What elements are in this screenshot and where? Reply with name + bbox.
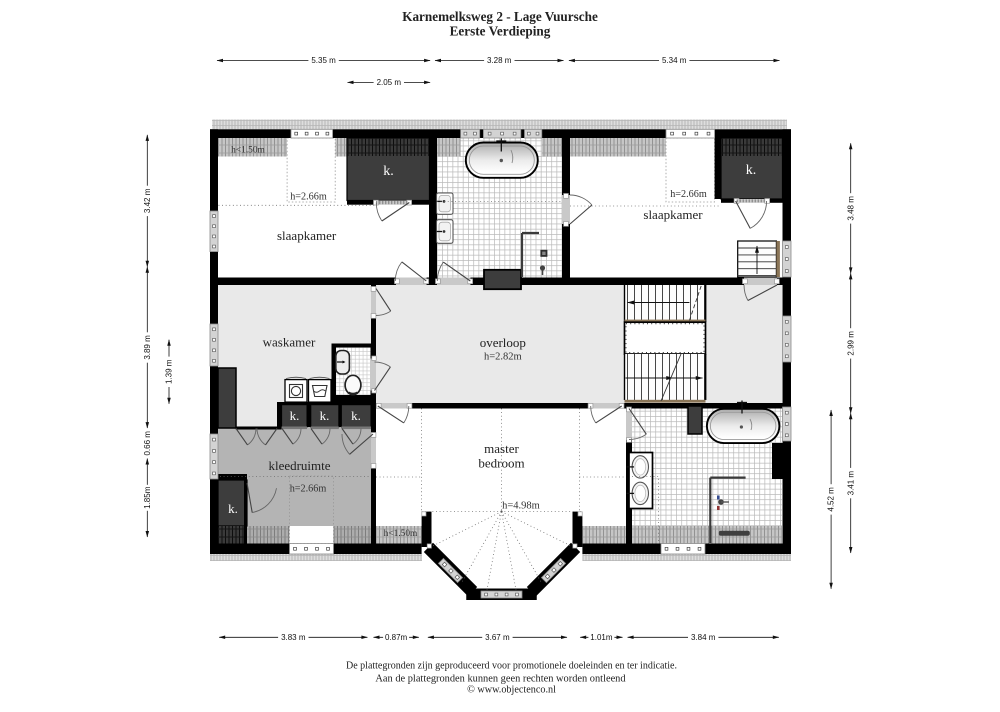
svg-text:1.01m: 1.01m: [590, 633, 613, 642]
svg-text:h=4.98m: h=4.98m: [502, 501, 540, 512]
svg-text:5.34 m: 5.34 m: [662, 56, 687, 65]
svg-text:k.: k.: [228, 501, 238, 516]
svg-text:h<1.50m: h<1.50m: [231, 146, 265, 156]
svg-text:k.: k.: [290, 408, 300, 423]
svg-text:2.05 m: 2.05 m: [377, 78, 402, 87]
svg-text:3.67 m: 3.67 m: [485, 633, 510, 642]
svg-text:0.66 m: 0.66 m: [143, 431, 152, 456]
svg-text:0.87m: 0.87m: [385, 633, 408, 642]
svg-text:3.28 m: 3.28 m: [487, 56, 512, 65]
svg-text:bedroom: bedroom: [478, 456, 524, 471]
svg-text:1.85m: 1.85m: [143, 486, 152, 509]
svg-text:k.: k.: [351, 408, 361, 423]
svg-text:h=2.66m: h=2.66m: [670, 189, 707, 200]
svg-text:4.52 m: 4.52 m: [827, 487, 836, 512]
svg-text:Karnemelksweg 2 - Lage Vuursch: Karnemelksweg 2 - Lage Vuursche: [402, 9, 598, 24]
svg-text:waskamer: waskamer: [263, 335, 316, 350]
svg-text:De plattegronden zijn geproduc: De plattegronden zijn geproduceerd voor …: [346, 661, 677, 672]
svg-text:3.84 m: 3.84 m: [691, 633, 716, 642]
svg-text:3.83 m: 3.83 m: [281, 633, 306, 642]
svg-text:k.: k.: [383, 164, 394, 179]
svg-text:h=2.66m: h=2.66m: [290, 192, 327, 203]
svg-text:h<1.50m: h<1.50m: [384, 529, 418, 539]
svg-text:1.39 m: 1.39 m: [165, 359, 174, 384]
svg-text:master: master: [484, 441, 519, 456]
svg-text:h=2.66m: h=2.66m: [290, 484, 327, 495]
svg-text:slaapkamer: slaapkamer: [277, 228, 337, 243]
svg-text:kleedruimte: kleedruimte: [268, 458, 330, 473]
svg-text:3.41 m: 3.41 m: [846, 471, 855, 496]
svg-text:© www.objectenco.nl: © www.objectenco.nl: [467, 685, 556, 696]
svg-text:overloop: overloop: [480, 335, 526, 350]
svg-text:3.89 m: 3.89 m: [143, 335, 152, 360]
svg-text:Eerste Verdieping: Eerste Verdieping: [450, 24, 551, 39]
svg-text:2.99 m: 2.99 m: [846, 331, 855, 356]
svg-text:k.: k.: [320, 408, 330, 423]
svg-text:5.35 m: 5.35 m: [311, 56, 336, 65]
svg-text:k.: k.: [746, 163, 757, 178]
svg-text:slaapkamer: slaapkamer: [643, 207, 703, 222]
svg-text:h=2.82m: h=2.82m: [484, 352, 522, 363]
svg-text:3.48 m: 3.48 m: [846, 196, 855, 221]
svg-text:Aan de plattegronden kunnen ge: Aan de plattegronden kunnen geen rechten…: [375, 674, 626, 685]
svg-text:3.42 m: 3.42 m: [143, 188, 152, 213]
